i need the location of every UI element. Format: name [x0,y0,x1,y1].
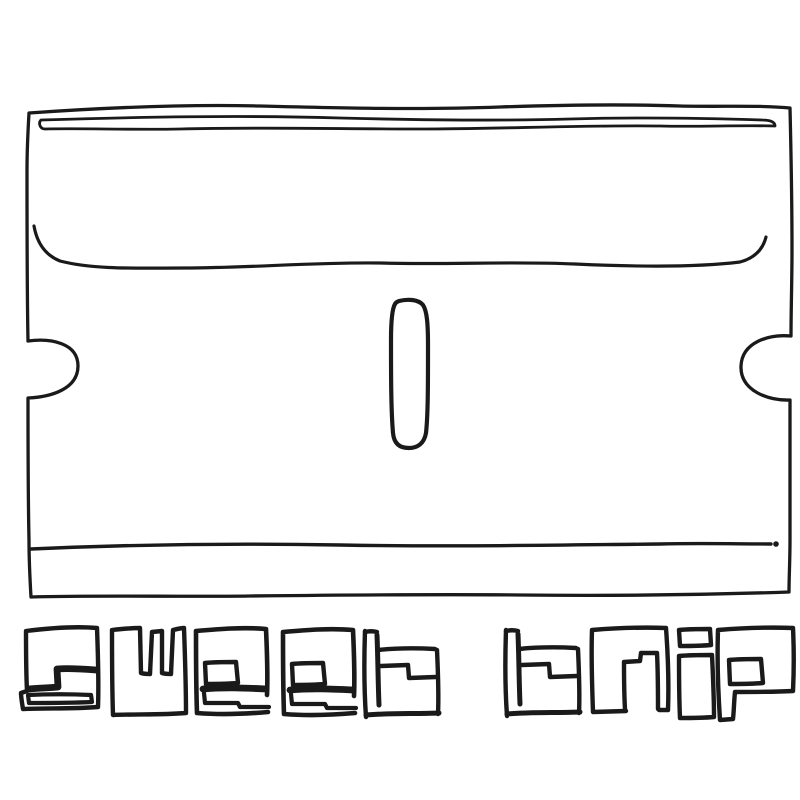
blade-outline [27,105,792,597]
razor-blade-drawing [27,105,792,597]
letter-t-second [505,630,580,716]
letter-w [112,628,186,715]
letter-e-second [283,629,356,715]
blade-edge-line [31,544,771,549]
letter-i [679,629,714,718]
blade-center-slot [391,300,428,448]
letter-t-inner-wall [377,635,379,705]
letter-e-mouth [204,693,269,707]
letter-p [718,628,794,720]
letter-i-body [679,655,714,718]
letter-e-bar [203,688,266,689]
letter-r-inner [624,653,658,709]
letter-s-tongue [29,669,96,689]
razor-blade-and-title-illustration [0,0,800,800]
letter-e-eye [205,662,238,684]
letter-t [364,631,439,717]
letter-t-bottom [366,713,439,715]
letter-r [592,628,669,712]
letter-t-right-edge [437,650,438,714]
letter-t-left-edge [364,631,366,717]
blade-edge-line-end-dot [773,541,779,547]
letter-t-stem-cap [365,631,377,632]
letter-e [196,628,269,714]
blade-shoulder-line [34,226,766,268]
letter-t-crossbar-hook [381,665,436,678]
album-cover: sweet trip [0,0,800,800]
letter-w-outline [112,628,186,715]
letter-p-eye [729,659,763,684]
letter-s [21,627,98,709]
letter-i-dot [679,629,711,646]
blade-top-slot [40,117,775,130]
title-lettering [21,627,794,720]
letter-t-crossbar-top [378,648,435,650]
letter-s-channel [28,694,92,703]
